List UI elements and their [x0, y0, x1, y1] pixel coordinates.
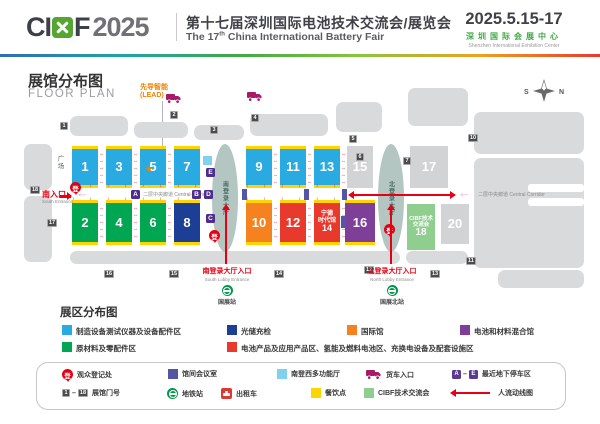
compass-north-label: N: [559, 89, 564, 96]
truck-icon: [247, 91, 263, 102]
hall-number: 3: [115, 160, 122, 174]
hall-number: 14: [322, 224, 332, 233]
corridor-arrows: [132, 204, 139, 240]
zone-label: 国际馆: [361, 326, 384, 337]
hall-number: 6: [149, 216, 156, 230]
legend-food: 餐饮点: [311, 388, 346, 398]
gate-3: 3: [210, 126, 218, 134]
corridor-arrows: [166, 150, 173, 186]
logo-text-ci: CI: [26, 12, 51, 43]
hall-number: 4: [115, 216, 122, 230]
flow-line-horizontal: [350, 194, 454, 196]
registration-pin-icon: 登: [62, 369, 73, 380]
gate-18: 18: [30, 186, 40, 194]
gate-badge-1: 1: [62, 389, 70, 397]
truck-icon: [366, 369, 382, 380]
zone-swatch-materials: [62, 342, 72, 352]
parking-marker-a: A: [131, 190, 140, 199]
cibf-floor-plan-poster: CI F 2025 第十七届深圳国际电池技术交流会/展览会 The 17th C…: [0, 0, 600, 424]
logo-year: 2025: [93, 12, 149, 43]
hall-17: 17: [410, 146, 448, 188]
legend-taxi: 出租车: [221, 388, 257, 399]
zone-label: 电池产品及应用产品区、氢能及燃料电池区、充换电设备及配套设施区: [241, 343, 474, 354]
zone-label: 制造设备测试仪器及设备配件区: [76, 326, 181, 337]
building-block: [498, 270, 584, 288]
building-slot: [528, 198, 584, 206]
building-block: [194, 125, 244, 140]
multi-function-hall-area: [203, 156, 212, 165]
hall-6: 6: [140, 200, 166, 245]
corridor-arrows: [246, 196, 340, 202]
meeting-room-marker: [341, 216, 346, 228]
building-block: [408, 88, 468, 126]
hall-number: 12: [286, 216, 300, 230]
north-lobby-entrance-en: North Lobby Entrance: [347, 277, 437, 282]
hall-number: 10: [252, 216, 266, 230]
hall-16: 16: [345, 200, 375, 245]
flow-line-north: [390, 206, 392, 264]
hall-10: 10: [246, 200, 272, 245]
hall-14-catl: 宁德 时代馆 14: [314, 200, 340, 245]
legend-label: 南登西多功能厅: [291, 369, 340, 379]
hall-12: 12: [280, 200, 306, 245]
parking-marker-e: E: [206, 168, 215, 177]
legend-label: 馆间会议室: [182, 369, 217, 379]
gate-15: 15: [169, 270, 179, 278]
cibf-logo: CI F 2025: [26, 12, 149, 43]
hall-13: 13: [314, 146, 340, 188]
building-block: [474, 158, 584, 268]
gate-6: 6: [356, 153, 364, 161]
corridor-arrows: [132, 150, 139, 186]
south-lobby-entrance-cn: 南登录大厅入口: [182, 266, 272, 276]
corridor-arrows: [72, 183, 200, 189]
building-block: [70, 251, 400, 264]
hall-8: 8: [174, 200, 200, 245]
star-marker: [145, 165, 153, 174]
legend-label: 展馆门号: [92, 388, 120, 398]
hall-3: 3: [106, 146, 132, 188]
north-lobby-entrance-cn: 北登录大厅入口: [347, 266, 437, 276]
range-separator: –: [463, 371, 467, 378]
building-block: [250, 114, 328, 136]
gate-2: 2: [170, 111, 178, 119]
parking-badge-a: A: [452, 370, 461, 379]
gate-10: 10: [468, 134, 478, 142]
corridor-arrows: [272, 150, 279, 186]
building-block: [474, 112, 584, 154]
hall-number: 15: [353, 160, 367, 174]
legend-label: 最近地下停车区: [482, 369, 531, 379]
range-separator: –: [72, 390, 76, 397]
metro-icon: [222, 285, 233, 296]
corridor-arrows: [98, 150, 105, 186]
fair-title-en-post: China International Battery Fair: [225, 31, 384, 43]
legend-registration: 登 观众登记处: [62, 369, 112, 380]
metro-icon: [167, 388, 178, 399]
parking-marker-b: B: [192, 190, 201, 199]
legend-cibf-exchange: CIBF技术交流会: [364, 388, 429, 398]
gate-badge-18: 18: [78, 389, 88, 397]
lead-exhibitor-label: 先导智能 (LEAD): [140, 84, 168, 100]
legend-meeting-room: 馆间会议室: [168, 369, 217, 379]
zone-swatch-mixed: [460, 325, 470, 335]
flow-line-south: [225, 206, 227, 264]
legend-parking: A – E 最近地下停车区: [452, 369, 531, 379]
meeting-room-marker: [242, 189, 247, 200]
food-swatch: [311, 388, 321, 398]
gate-7: 7: [403, 157, 411, 165]
parking-badge-e: E: [469, 370, 478, 379]
venue-cn: 深圳国际会展中心: [454, 31, 574, 42]
registration-pin: 登: [209, 230, 220, 241]
parking-marker-d: D: [204, 190, 213, 199]
legend-label: 人流动线图: [498, 388, 533, 398]
legend-label: CIBF技术交流会: [378, 388, 429, 398]
zone-swatch-international: [347, 325, 357, 335]
parking-marker-c: C: [206, 214, 215, 223]
plaza-label: 广场: [54, 155, 64, 170]
hall-number: 11: [286, 160, 300, 174]
hall-number: 17: [422, 160, 436, 174]
header-gradient-bar: [0, 54, 600, 57]
zone-label: 原材料及零配件区: [76, 343, 136, 354]
south-lobby-entrance-en: South Lobby Entrance: [182, 277, 272, 282]
central-corridor-label: 二层中央廊道 Central Corridor: [478, 191, 545, 198]
hall-number: 20: [448, 217, 462, 231]
corridor-arrows: [306, 204, 313, 240]
hall-4: 4: [106, 200, 132, 245]
fair-title-en: The 17th China International Battery Fai…: [186, 31, 384, 43]
logo-text-f: F: [74, 12, 90, 43]
north-lobby-entrance: 北登录大厅入口 North Lobby Entrance 国展北站: [347, 266, 437, 306]
corridor-arrows: [306, 150, 313, 186]
hall-number: 8: [183, 216, 190, 230]
legend-gate-numbers: 1 – 18 展馆门号: [62, 388, 120, 398]
logo-pinwheel-icon: [52, 17, 73, 38]
multi-hall-swatch: [277, 369, 287, 379]
gate-4: 4: [251, 114, 259, 122]
building-block: [134, 122, 188, 138]
corridor-arrows: [98, 204, 105, 240]
building-block: [336, 102, 382, 132]
legend-flow-line: 人流动线图: [452, 388, 533, 398]
corridor-arrows: [340, 150, 347, 186]
hall-2: 2: [72, 200, 98, 245]
meeting-room-swatch: [168, 369, 178, 379]
building-block: [24, 196, 52, 262]
metro-station-north: 国展北站: [380, 297, 404, 306]
legend-label: 地铁站: [182, 389, 203, 399]
map-title-en: FLOOR PLAN: [28, 88, 116, 100]
zone-swatch-battery: [227, 342, 237, 352]
flow-arrow-icon: [452, 392, 490, 394]
metro-icon: [387, 285, 398, 296]
legend-label: 货车入口: [386, 370, 414, 380]
hall-9: 9: [246, 146, 272, 188]
gate-14: 14: [274, 270, 284, 278]
hall-number: 9: [255, 160, 262, 174]
venue-en: Shenzhen International Exhibition Center: [454, 43, 574, 49]
hall-number: 2: [81, 216, 88, 230]
metro-station-south: 国展站: [218, 297, 236, 306]
south-lobby-entrance: 南登录大厅入口 South Lobby Entrance 国展站: [182, 266, 272, 306]
compass-icon: S N: [518, 78, 570, 104]
hall-18-cibf-exchange: CIBF技术 交流会 18: [407, 204, 435, 250]
hall-number: 1: [81, 160, 88, 174]
legend-label: 餐饮点: [325, 388, 346, 398]
corridor-arrows: [246, 183, 340, 189]
building-block: [70, 116, 128, 136]
legend-label: 出租车: [236, 389, 257, 399]
compass-south-label: S: [524, 89, 529, 96]
hall-20: 20: [441, 204, 469, 244]
zone-swatch-manufacturing: [62, 325, 72, 335]
corridor-arrows: [166, 204, 173, 240]
gate-1: 1: [60, 122, 68, 130]
zone-legend-title: 展区分布图: [60, 304, 118, 320]
hall-number: 18: [415, 228, 426, 239]
gate-17: 17: [47, 219, 57, 227]
zone-label: 光储充检: [241, 326, 271, 337]
truck-icon: [166, 93, 182, 104]
lead-label-cn: 先导智能: [140, 84, 168, 92]
taxi-icon: [221, 388, 232, 399]
cibf-swatch: [364, 388, 374, 398]
hall-number: 13: [320, 160, 334, 174]
legend-truck-entrance: 货车入口: [366, 369, 414, 380]
building-block: [24, 144, 52, 190]
hall-number: 7: [183, 160, 190, 174]
gate-16: 16: [104, 270, 114, 278]
hall-11: 11: [280, 146, 306, 188]
zone-label: 电池和材料混合馆: [474, 326, 534, 337]
fair-dates: 2025.5.15-17: [454, 10, 574, 29]
gate-5: 5: [349, 135, 357, 143]
fair-title-en-pre: The 17: [186, 31, 219, 43]
hall-7: 7: [174, 146, 200, 188]
hall-number: 16: [353, 216, 367, 230]
corridor-arrows: [272, 204, 279, 240]
building-block: [406, 251, 468, 264]
entrance-arrow-icon: [60, 195, 71, 198]
header-divider: [176, 13, 177, 41]
meeting-room-marker: [304, 189, 309, 200]
fair-title-cn: 第十七届深圳国际电池技术交流会/展览会: [186, 13, 451, 33]
legend-metro: 地铁站: [167, 388, 203, 399]
lead-label-en: (LEAD): [140, 92, 168, 100]
legend-label: 观众登记处: [77, 370, 112, 380]
gate-11: 11: [466, 257, 476, 265]
legend-multi-hall: 南登西多功能厅: [277, 369, 340, 379]
header: CI F 2025 第十七届深圳国际电池技术交流会/展览会 The 17th C…: [0, 0, 600, 54]
zone-swatch-storage: [227, 325, 237, 335]
date-venue-block: 2025.5.15-17 深圳国际会展中心 Shenzhen Internati…: [454, 10, 574, 49]
